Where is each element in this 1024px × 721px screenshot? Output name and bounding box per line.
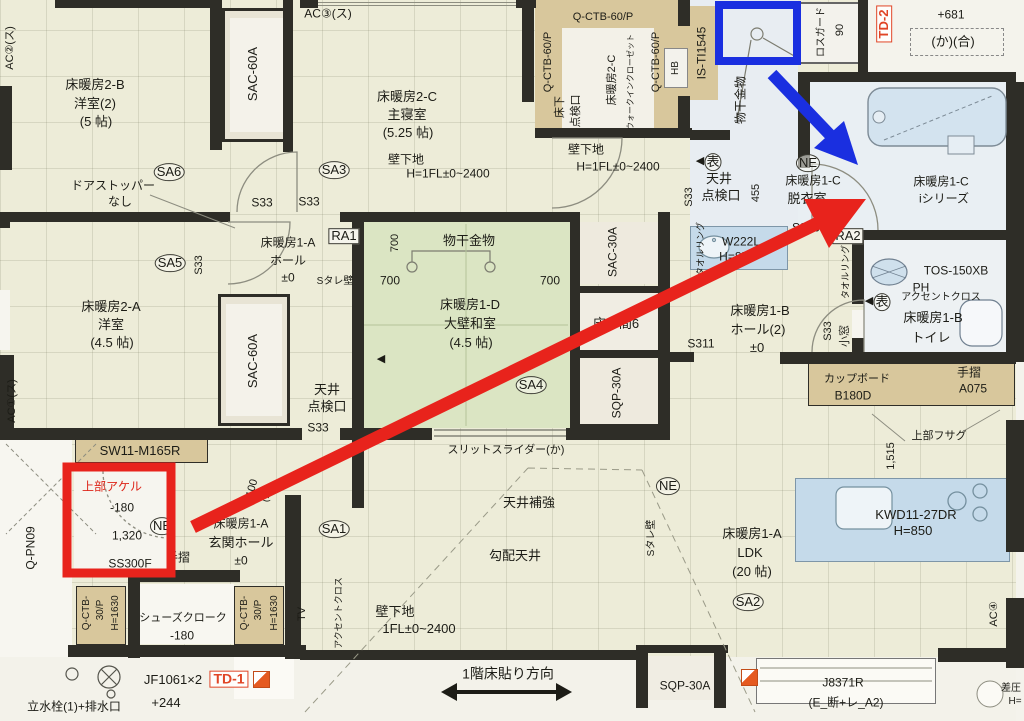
genkan-1: 床暖房1-A [214, 518, 269, 531]
genkan-2: 玄関ホール [208, 536, 273, 550]
s311: S311 [687, 338, 714, 351]
floor-direction: 1階床貼り方向 [462, 667, 554, 682]
tenjo-tenkenko-1b: 点検口 [701, 189, 740, 203]
ac2-label: AC②(ス) [5, 26, 17, 69]
sac-30a: SAC-30A [607, 227, 620, 277]
j8371r-detail-square-icon [741, 669, 758, 686]
room-2a-2: 洋室 [98, 318, 124, 332]
td-2: TD-2 [876, 6, 892, 43]
dim-700a: 700 [390, 234, 402, 252]
ac1-label: AC①(ス) [7, 379, 19, 422]
s33-3: S33 [684, 187, 696, 207]
omote-arrow-3: ◀ [377, 354, 385, 366]
tenjo-tenkenko-2a: 天井 [314, 383, 340, 397]
doorstopper-2: なし [108, 196, 132, 209]
yukashita-2: 点検口 [571, 95, 583, 128]
td1-detail-square-icon [253, 671, 270, 688]
room-2b-type: 洋室(2) [74, 97, 116, 111]
sw11-m165r: SW11-M165R [100, 444, 181, 458]
sa4-mark: SA4 [516, 376, 547, 394]
cupboard-2: B180D [835, 390, 872, 403]
s33-1: S33 [251, 197, 272, 210]
labels-layer: AC②(ス)床暖房2-B洋室(2)(5 帖)SAC-60AAC③(ス)ドアストッ… [0, 0, 1024, 721]
s33-5: S33 [194, 255, 206, 275]
ne-2: NE [656, 477, 680, 495]
hall-1a-3: ±0 [281, 272, 294, 285]
room-2c-name: 床暖房2-C [377, 90, 437, 104]
dim-681: +681 [937, 9, 964, 22]
joubu-akeru: 上部アケル [82, 481, 142, 494]
q-ctb-60p-3: Q-CTB-60/P [651, 32, 663, 93]
q-ctb-60p-1: Q-CTB-60/P [543, 32, 555, 93]
ra1: RA1 [328, 228, 359, 244]
room-2a-1: 床暖房2-A [81, 300, 140, 314]
toilet-1: 床暖房1-B [903, 311, 962, 325]
q-ctb-30p-r3: H=1630 [270, 595, 281, 630]
j8371r-2: (E_断+レ_A2) [808, 697, 883, 710]
h-eq: H= [1008, 697, 1021, 708]
sac-60a-top: SAC-60A [246, 47, 260, 101]
q-ctb-30p-l3: H=1630 [111, 595, 122, 630]
s300: S300 [792, 222, 820, 235]
room-2c-size: (5.25 帖) [383, 126, 434, 140]
towel-ring-2: タオルリング [841, 245, 850, 299]
dim-244: +244 [151, 696, 180, 710]
dim-1320: 1,320 [112, 530, 142, 543]
hb-label: HB [671, 61, 682, 75]
monohoshi-h: 物干金物 [443, 234, 495, 248]
shoes-closet-1: シューズクローク [139, 613, 226, 625]
ka-gou: (か)(合) [931, 35, 974, 49]
kabeshitaji-2b: H=1FL±0~2400 [576, 161, 659, 174]
q-ctb-30p-r1: Q-CTB- [240, 596, 251, 630]
omote-mark-2: 表 [873, 293, 890, 311]
sa3-mark: SA3 [319, 161, 350, 179]
is-ti1545: IS-TI1545 [696, 27, 709, 80]
ac4-label: AC④ [989, 601, 1001, 626]
ne-1: NE [796, 154, 820, 172]
dim-700c: 700 [540, 275, 560, 288]
tenjo-tenkenko-2b: 点検口 [307, 400, 346, 414]
kwd-1: KWD11-27DR [875, 508, 956, 522]
sa2-mark: SA2 [733, 593, 764, 611]
accent-cloth-2: アクセントクロス [334, 577, 343, 649]
tokonoma: 床の間6 [593, 317, 639, 331]
stare-kabe-2: Sタレ壁 [647, 520, 658, 557]
joubu-fusagu: 上部フサグ [912, 431, 967, 443]
s33-6: S33 [307, 422, 328, 435]
cupboard-1: カップボード [824, 374, 890, 386]
floor-plan: AC②(ス)床暖房2-B洋室(2)(5 帖)SAC-60AAC③(ス)ドアストッ… [0, 0, 1024, 721]
ldk-3: (20 帖) [732, 565, 772, 579]
q-pn09: Q-PN09 [25, 526, 38, 569]
kabeshitaji-3b: 1FL±0~2400 [382, 622, 455, 636]
dim-455: 455 [751, 184, 763, 202]
kwd-2: H=850 [894, 524, 933, 538]
ra2: RA2 [832, 228, 863, 244]
rosguard-2: 90 [835, 24, 847, 36]
sa5-mark: SA5 [155, 254, 186, 272]
tatemizusen: 立水栓(1)+排水口 [27, 701, 121, 714]
rosguard-1: ロスガード [817, 7, 828, 57]
ss300f: SS300F [108, 558, 151, 571]
tenjo-hokyo: 天井補強 [503, 496, 555, 510]
tenjo-tenkenko-1a: 天井 [706, 172, 732, 186]
omote-arrow-1: ◀ [696, 156, 704, 168]
stare-kabe-1: Sタレ壁 [317, 277, 354, 288]
room-2c-type: 主寝室 [387, 108, 426, 122]
tesuri-2: 手摺 [166, 552, 190, 565]
hall-1b-3: ±0 [750, 341, 764, 355]
towel-ring-1: タオルリング [696, 222, 705, 276]
tv-label: TV [297, 607, 309, 621]
toilet-2: トイレ [911, 331, 950, 345]
jf1061: JF1061×2 [144, 673, 202, 687]
ldk-2: LDK [737, 546, 762, 560]
room-2b-size: (5 帖) [80, 115, 113, 129]
hall-1b-2: ホール(2) [731, 323, 786, 337]
omote-mark-1: 表 [704, 153, 721, 171]
wic-name-1: 床暖房2-C [607, 55, 619, 106]
accent-cloth-1: アクセントクロス [901, 293, 981, 304]
kabeshitaji-2a: 壁下地 [568, 144, 604, 157]
s100: S100 [243, 478, 261, 506]
kabeshitaji-1a: 壁下地 [388, 154, 424, 167]
omote-arrow-2: ◀ [865, 296, 873, 308]
ac3-label: AC③(ス) [304, 8, 351, 21]
datsuishitsu-2: 脱衣室 [787, 192, 826, 206]
tesuri-a075-1: 手摺 [957, 367, 981, 380]
q-ctb-30p-l2: 30/P [96, 600, 107, 621]
s33-2: S33 [298, 196, 319, 209]
washitsu-2: 大壁和室 [444, 317, 496, 331]
tesuri-a075-2: A075 [959, 383, 987, 396]
w222l-1: W222L [722, 236, 760, 249]
ka-v: (か) [261, 485, 275, 504]
hall-1b-1: 床暖房1-B [730, 304, 789, 318]
sqp-30a-1: SQP-30A [611, 368, 624, 419]
shoes-closet-2: -180 [170, 630, 194, 643]
w222l-2: H=850 [719, 251, 755, 264]
sac-60a-left: SAC-60A [246, 334, 260, 388]
genkan-3: ±0 [234, 555, 247, 568]
dim-1515: 1,515 [886, 442, 898, 470]
wic-name-2: ウォークインクローゼット [627, 34, 635, 130]
sa-atsu: 差圧 [1001, 684, 1021, 695]
td-1: TD-1 [209, 671, 248, 688]
q-ctb-30p-r2: 30/P [254, 600, 265, 621]
sa6-mark: SA6 [154, 163, 185, 181]
j8371r-1: J8371R [822, 677, 863, 690]
komado: 小窓 [840, 325, 852, 347]
sqp-30a-2: SQP-30A [660, 680, 711, 693]
yukashita-1: 床下 [555, 96, 567, 118]
hall-1a-2: ホール [270, 255, 306, 268]
datsuishitsu-1: 床暖房1-C [785, 175, 840, 188]
bathroom-2: iシリーズ [919, 193, 969, 206]
dim-700b: 700 [380, 275, 400, 288]
koubai-tenjo: 勾配天井 [489, 549, 541, 563]
ne-3: NE [150, 517, 174, 535]
monohoshi-v: 物干金物 [735, 76, 748, 124]
hall-1a-1: 床暖房1-A [261, 237, 316, 250]
sa1-mark: SA1 [319, 520, 350, 538]
bathroom-1: 床暖房1-C [913, 176, 968, 189]
kabeshitaji-1b: H=1FL±0~2400 [406, 168, 489, 181]
room-2b-name: 床暖房2-B [65, 78, 124, 92]
washitsu-3: (4.5 帖) [449, 336, 492, 350]
tos-150xb: TOS-150XB [924, 265, 988, 278]
slit-slider: スリットスライダー(か) [448, 445, 565, 457]
q-ctb-30p-l1: Q-CTB- [82, 596, 93, 630]
ldk-1: 床暖房1-A [722, 527, 781, 541]
doorstopper-1: ドアストッパー [71, 180, 155, 193]
s33-4: S33 [823, 321, 835, 341]
washitsu-1: 床暖房1-D [440, 298, 500, 312]
kabeshitaji-3a: 壁下地 [375, 605, 414, 619]
q-ctb-60p-2: Q-CTB-60/P [573, 12, 634, 24]
dim-m180a: -180 [110, 502, 134, 515]
room-2a-3: (4.5 帖) [90, 336, 133, 350]
